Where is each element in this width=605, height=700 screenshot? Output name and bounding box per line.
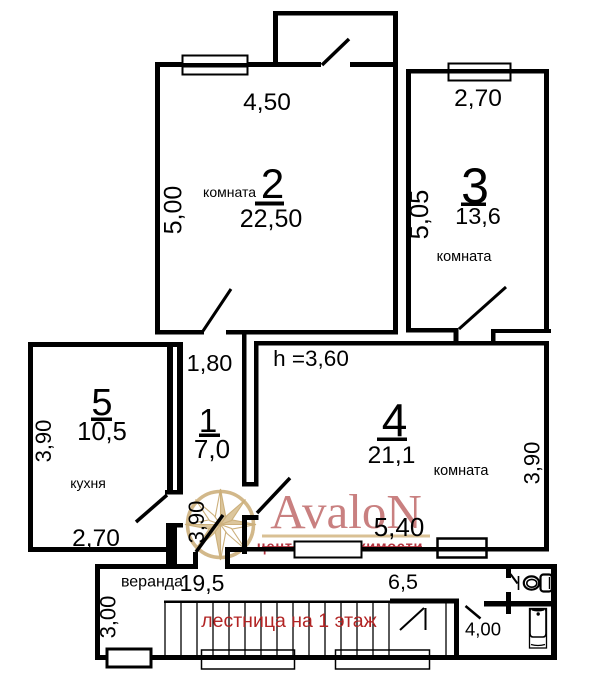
svg-text:2,70: 2,70 xyxy=(454,85,502,112)
svg-text:3,90: 3,90 xyxy=(520,442,545,485)
svg-text:19,5: 19,5 xyxy=(180,570,225,596)
svg-text:13,6: 13,6 xyxy=(455,203,501,229)
svg-text:22,50: 22,50 xyxy=(240,205,303,233)
svg-text:лестница на 1 этаж: лестница на 1 этаж xyxy=(201,610,376,632)
svg-text:1,80: 1,80 xyxy=(187,350,233,376)
svg-text:кухня: кухня xyxy=(70,475,106,491)
svg-text:комната: комната xyxy=(203,184,256,200)
svg-text:4,00: 4,00 xyxy=(465,619,501,640)
svg-text:3,90: 3,90 xyxy=(31,420,56,463)
svg-text:2,70: 2,70 xyxy=(72,525,120,552)
svg-text:6,5: 6,5 xyxy=(388,570,418,594)
svg-text:h =3,60: h =3,60 xyxy=(273,346,349,371)
svg-text:5,05: 5,05 xyxy=(406,190,434,240)
svg-text:7,0: 7,0 xyxy=(194,434,230,464)
svg-text:3,00: 3,00 xyxy=(96,596,121,639)
svg-text:4,50: 4,50 xyxy=(243,89,291,116)
svg-text:10,5: 10,5 xyxy=(77,418,127,446)
svg-text:комната: комната xyxy=(437,249,493,265)
svg-text:3,90: 3,90 xyxy=(184,501,209,544)
svg-text:21,1: 21,1 xyxy=(368,442,416,469)
svg-text:веранда: веранда xyxy=(121,574,183,591)
svg-text:5,40: 5,40 xyxy=(374,512,425,542)
svg-text:2: 2 xyxy=(261,160,284,207)
svg-text:5,00: 5,00 xyxy=(160,186,188,235)
svg-text:комната: комната xyxy=(434,463,490,479)
